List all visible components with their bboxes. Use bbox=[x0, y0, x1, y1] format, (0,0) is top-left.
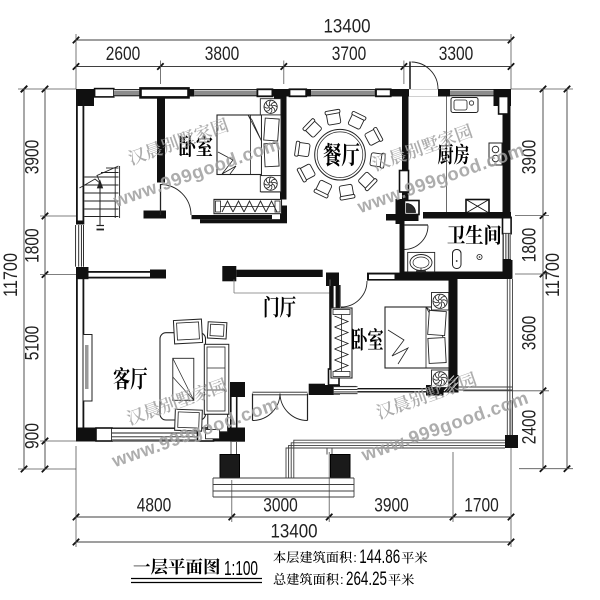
svg-text:264.25: 264.25 bbox=[346, 569, 387, 590]
svg-text:2600: 2600 bbox=[106, 43, 141, 65]
svg-text:3700: 3700 bbox=[332, 43, 367, 65]
svg-text:11700: 11700 bbox=[0, 253, 22, 297]
svg-text:1700: 1700 bbox=[464, 495, 499, 517]
svg-text:13400: 13400 bbox=[324, 16, 371, 38]
svg-text:144.86: 144.86 bbox=[359, 547, 400, 568]
svg-text:1800: 1800 bbox=[519, 228, 541, 263]
svg-text:3300: 3300 bbox=[439, 43, 474, 65]
svg-text:3900: 3900 bbox=[374, 495, 409, 517]
svg-text::: : bbox=[340, 572, 344, 587]
svg-text:2400: 2400 bbox=[519, 410, 541, 445]
svg-text:3000: 3000 bbox=[263, 495, 298, 517]
svg-text:5100: 5100 bbox=[22, 326, 44, 361]
svg-text:900: 900 bbox=[22, 423, 44, 449]
svg-text:1800: 1800 bbox=[22, 228, 44, 263]
svg-text:3900: 3900 bbox=[22, 140, 44, 175]
svg-text:3800: 3800 bbox=[205, 43, 240, 65]
svg-text:3600: 3600 bbox=[519, 316, 541, 351]
svg-text::: : bbox=[353, 550, 357, 565]
svg-text:11700: 11700 bbox=[542, 253, 564, 297]
svg-text:13400: 13400 bbox=[271, 521, 318, 543]
svg-text:1:100: 1:100 bbox=[224, 558, 258, 580]
svg-text:4800: 4800 bbox=[137, 495, 172, 517]
